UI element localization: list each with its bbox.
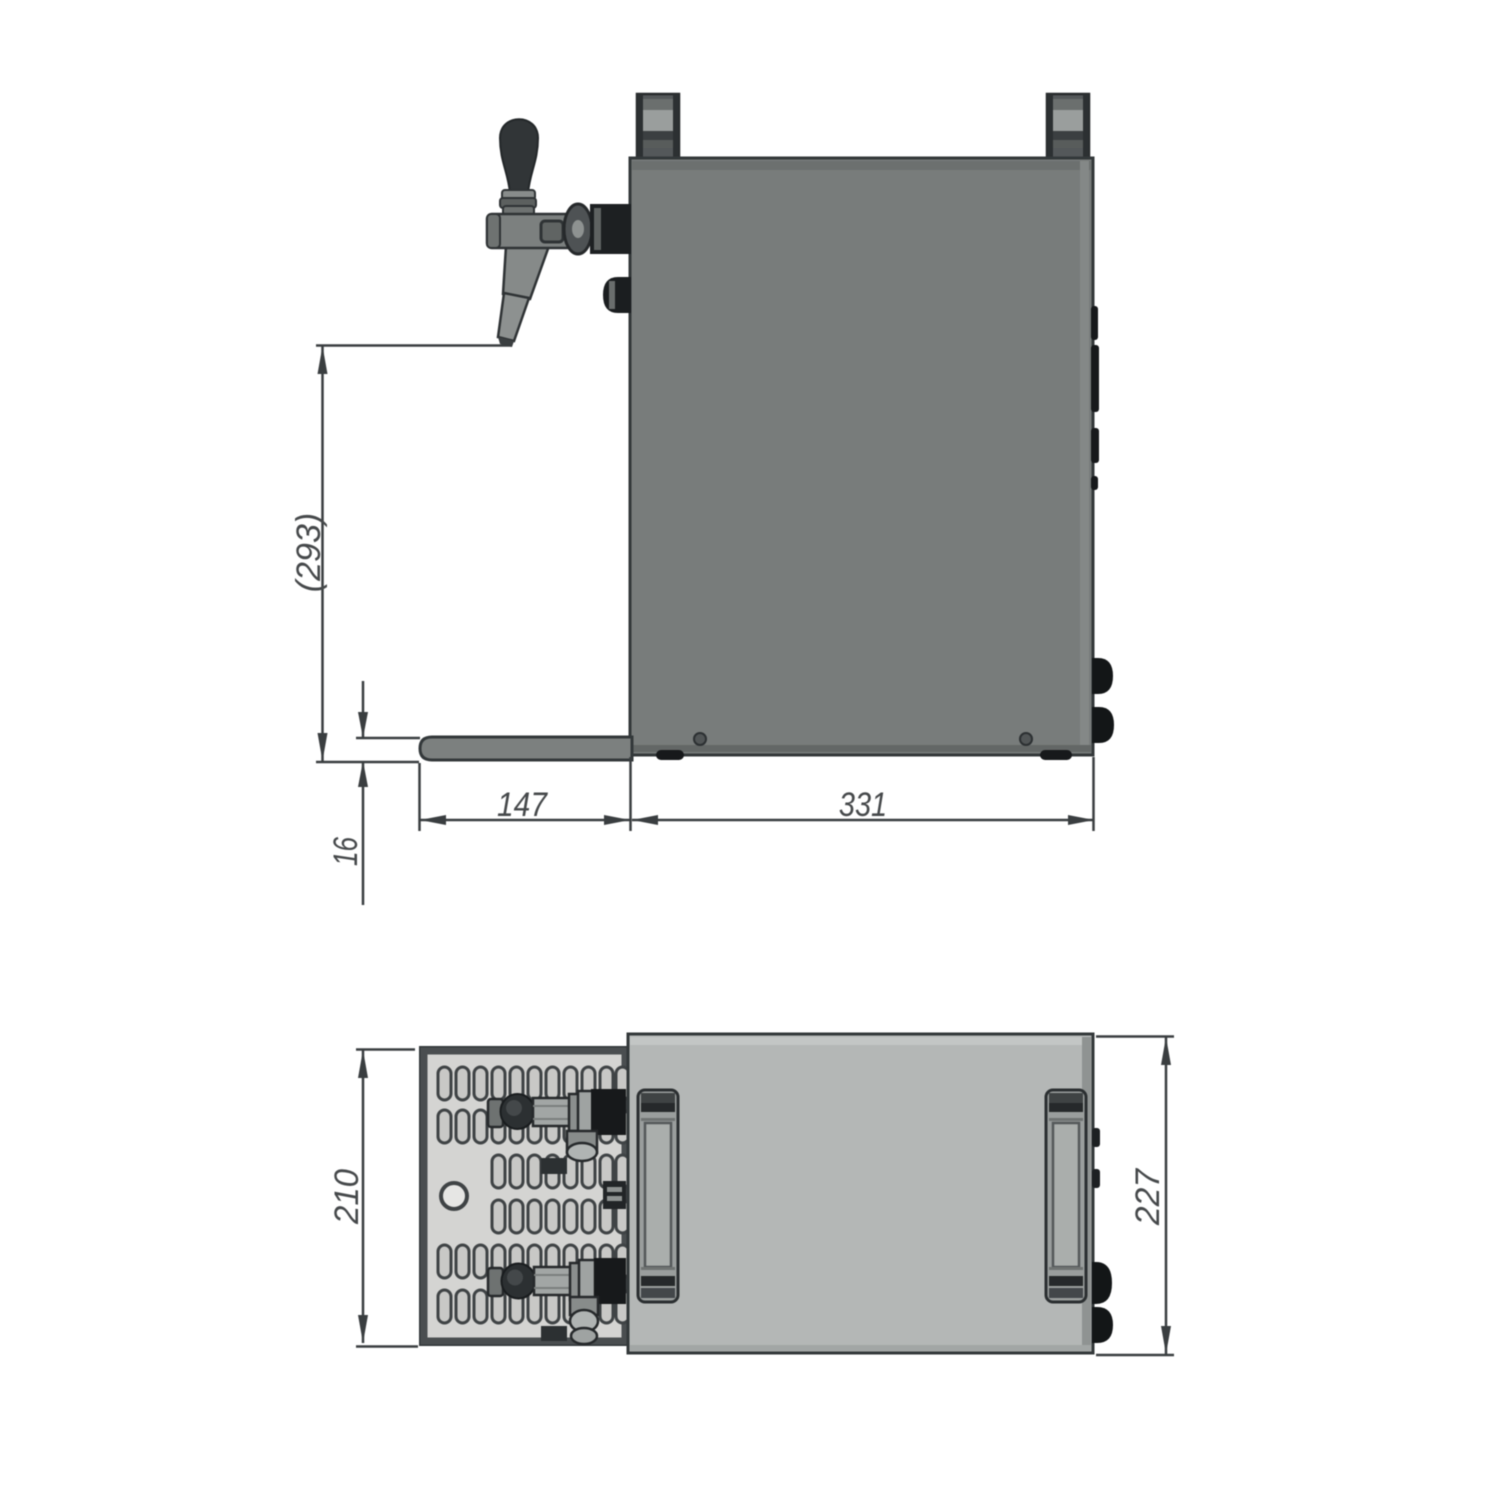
svg-text:210: 210 <box>329 1169 367 1225</box>
svg-text:331: 331 <box>839 785 887 824</box>
svg-text:227: 227 <box>1129 1168 1167 1226</box>
svg-text:(293): (293) <box>290 513 328 592</box>
svg-text:16: 16 <box>328 837 365 866</box>
svg-text:147: 147 <box>497 785 548 823</box>
